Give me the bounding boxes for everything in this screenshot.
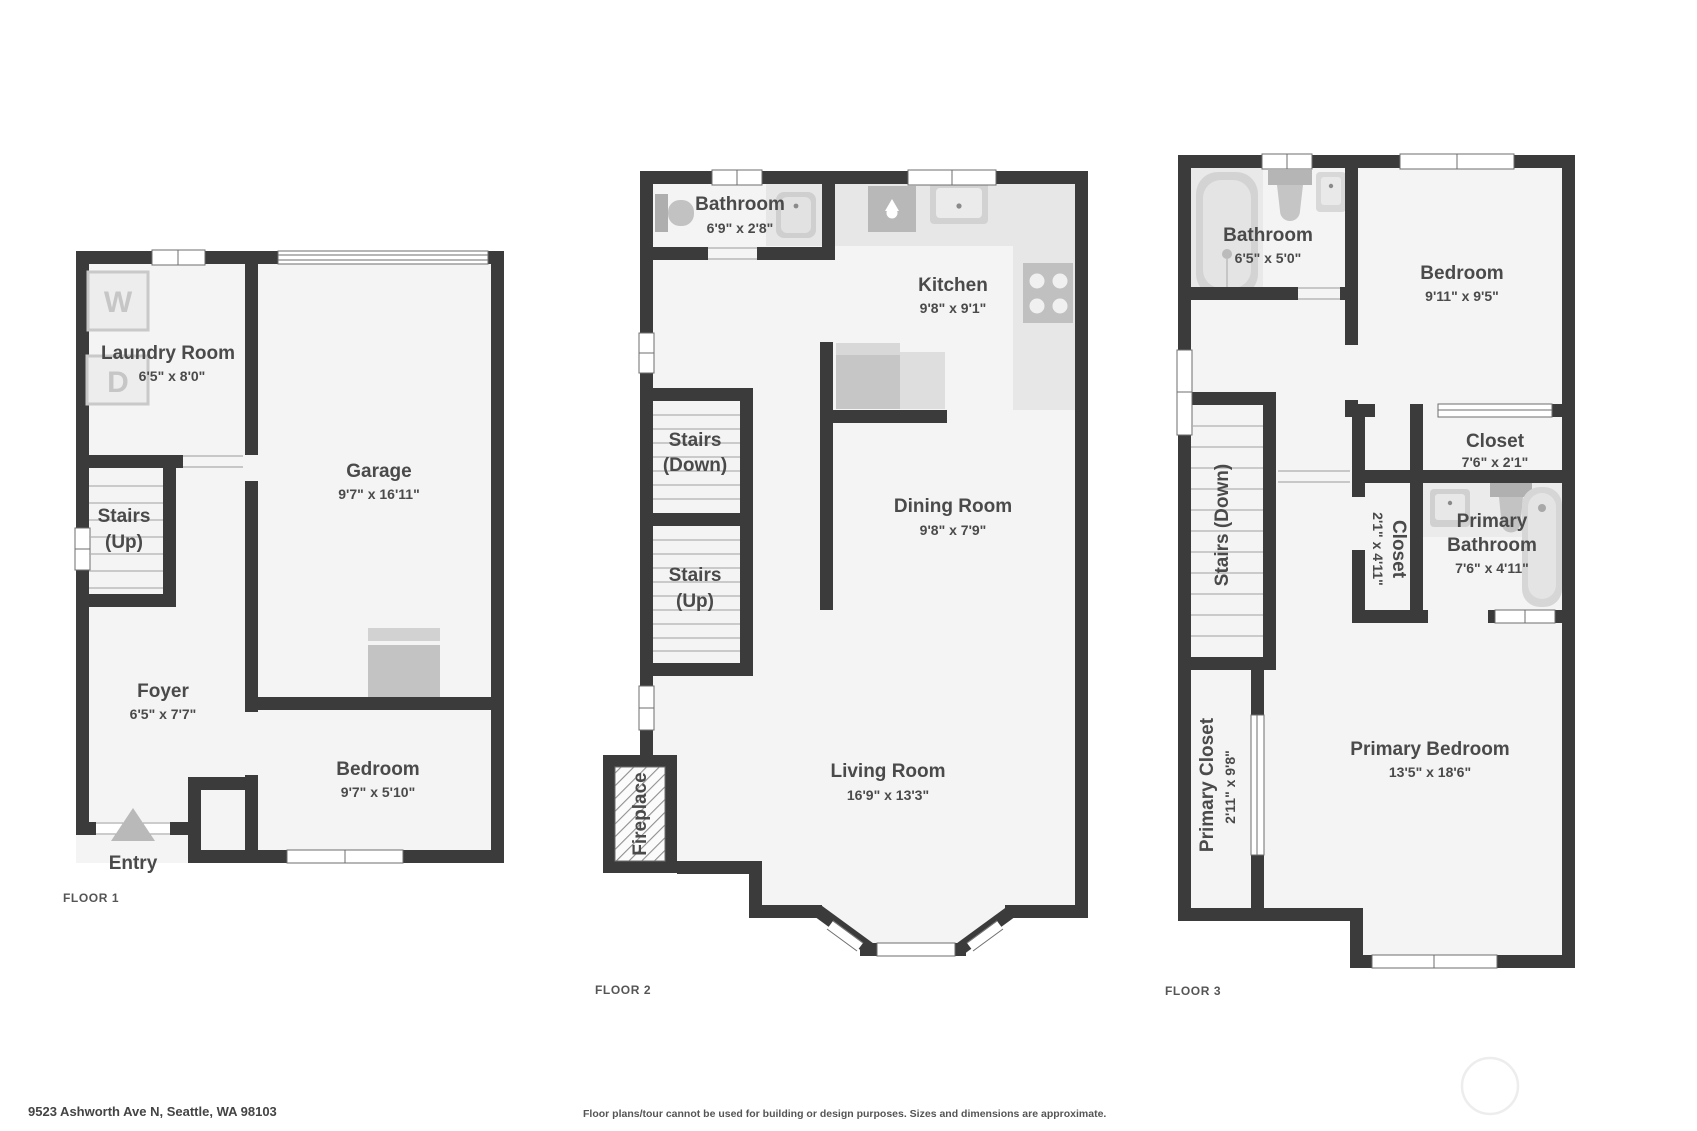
garage-door-gap <box>245 455 258 481</box>
closet-top-dims: 7'6" x 2'1" <box>1462 454 1529 470</box>
primary-bedroom-dims: 13'5" x 18'6" <box>1389 764 1471 780</box>
primary-bath-label-2: Bathroom <box>1447 535 1537 556</box>
floor2-stairs-down-label: Stairs <box>669 430 722 451</box>
floor1-bedroom-label: Bedroom <box>336 759 419 780</box>
foyer-label: Foyer <box>137 681 189 702</box>
floor1-bedroom-dims: 9'7" x 5'10" <box>341 784 415 800</box>
floor2-stairs-up-label: Stairs <box>669 565 722 586</box>
kitchen-label: Kitchen <box>918 275 988 296</box>
garage-door-opening <box>278 251 488 264</box>
floor2-toilet-icon <box>655 194 668 232</box>
floor3-bathroom-dims: 6'5" x 5'0" <box>1235 250 1302 266</box>
primary-bedroom-label: Primary Bedroom <box>1350 739 1509 760</box>
watermark-logo <box>1462 1058 1518 1114</box>
closet-small-label: Closet <box>1388 520 1409 579</box>
floorplan-page: Stairs (Up) W D Laundry Room 6'5" x 8'0"… <box>0 0 1697 1131</box>
floor2-stairs-up-label-2: (Up) <box>676 591 714 612</box>
laundry-room-label: Laundry Room <box>101 343 235 364</box>
primary-bath-dims: 7'6" x 4'11" <box>1455 560 1529 576</box>
garage-equipment-icon <box>368 628 440 641</box>
floor2-bathroom-dims: 6'9" x 2'8" <box>707 220 774 236</box>
closet-top-label: Closet <box>1466 431 1525 452</box>
floor2-bath-door-opening <box>708 247 757 260</box>
footer: 9523 Ashworth Ave N, Seattle, WA 98103 F… <box>28 1058 1518 1120</box>
floor3-stairs-label: Stairs (Down) <box>1212 464 1233 586</box>
primary-closet-label: Primary Closet <box>1197 717 1218 852</box>
primary-bath-door-opening <box>1428 610 1488 623</box>
fireplace-label: Fireplace <box>630 772 651 855</box>
floor3-bathroom-label: Bathroom <box>1223 225 1313 246</box>
floor3-title: FLOOR 3 <box>1165 984 1221 998</box>
entry-label: Entry <box>109 853 158 874</box>
floor-2-plan: Fireplace Stairs (Down) <box>595 170 1088 997</box>
floorplan-canvas: Stairs (Up) W D Laundry Room 6'5" x 8'0"… <box>0 0 1697 1131</box>
floor2-stairs-down-label-2: (Down) <box>663 455 727 476</box>
floor2-title: FLOOR 2 <box>595 983 651 997</box>
floor3-toilet-icon <box>1268 170 1312 185</box>
floor1-title: FLOOR 1 <box>63 891 119 905</box>
primary-bath-label: Primary <box>1457 511 1528 532</box>
floor3-bedroom-dims: 9'11" x 9'5" <box>1425 288 1499 304</box>
closet-small-dims: 2'1" x 4'11" <box>1370 512 1386 586</box>
floor-3-plan: Stairs (Down) Bathroom 6'5" x 5'0" Bedro… <box>1165 154 1575 998</box>
floor3-bath-door-opening <box>1298 287 1340 300</box>
dining-room-dims: 9'8" x 7'9" <box>920 522 987 538</box>
dining-room-label: Dining Room <box>894 496 1012 517</box>
property-address: 9523 Ashworth Ave N, Seattle, WA 98103 <box>28 1104 277 1119</box>
dryer-letter: D <box>107 366 129 399</box>
living-room-dims: 16'9" x 13'3" <box>847 787 929 803</box>
laundry-door-opening <box>183 455 243 468</box>
floor1-stairs-label: Stairs <box>98 506 151 527</box>
disclaimer-text: Floor plans/tour cannot be used for buil… <box>583 1108 1106 1120</box>
floor1-stairs-label-2: (Up) <box>105 532 143 553</box>
washer-letter: W <box>104 286 133 319</box>
primary-closet-dims: 2'11" x 9'8" <box>1222 750 1238 824</box>
garage-dims: 9'7" x 16'11" <box>338 486 419 502</box>
floor-1-plan: Stairs (Up) W D Laundry Room 6'5" x 8'0"… <box>63 250 504 905</box>
hall-door-opening <box>1278 470 1350 483</box>
laundry-room-dims: 6'5" x 8'0" <box>139 368 206 384</box>
living-room-label: Living Room <box>830 761 945 782</box>
floor3-bedroom-label: Bedroom <box>1420 263 1503 284</box>
fireplace: Fireplace <box>603 755 677 873</box>
kitchen-dims: 9'8" x 9'1" <box>920 300 987 316</box>
bay-window-center <box>877 943 955 956</box>
foyer-dims: 6'5" x 7'7" <box>130 706 197 722</box>
garage-label: Garage <box>346 461 411 482</box>
stove-icon <box>1023 263 1073 323</box>
floor2-bathroom-label: Bathroom <box>695 194 785 215</box>
